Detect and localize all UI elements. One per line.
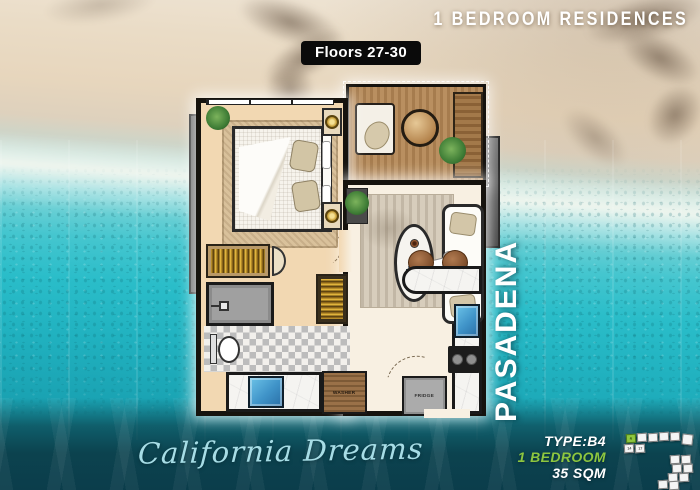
wardrobe <box>316 274 348 324</box>
balcony <box>346 84 486 184</box>
bedroom-window <box>206 99 334 105</box>
key-plan-unit: 14 <box>624 444 634 454</box>
kitchen-breakfast-bar <box>402 266 482 294</box>
floors-badge: Floors 27-30 <box>301 41 421 65</box>
balcony-round-table <box>401 109 439 147</box>
unit-type: TYPE:B4 <box>450 433 606 449</box>
wardrobe <box>206 244 270 278</box>
balcony-plant <box>439 137 466 164</box>
entry-doorway <box>424 409 470 418</box>
cooktop <box>448 346 480 373</box>
unit-info: TYPE:B4 1 BEDROOM 35 SQM <box>450 433 606 481</box>
balcony-bench <box>453 92 483 178</box>
key-plan-unit <box>637 433 647 443</box>
key-plan-unit <box>670 455 680 465</box>
key-plan-unit <box>679 473 689 483</box>
living-room-plant <box>346 188 368 224</box>
bed-pillow <box>322 141 331 169</box>
bedroom-plant <box>206 106 230 130</box>
key-plan-unit <box>681 455 691 465</box>
key-plan-unit-highlighted: 4 <box>626 434 636 444</box>
toilet <box>218 336 240 363</box>
balcony-lounge-chair <box>355 103 395 155</box>
floor-plan: WASHER FRIDGE <box>196 84 502 426</box>
floor-key-plan: 4 14 17 <box>624 431 700 489</box>
lamp-icon <box>325 209 339 223</box>
toilet <box>210 334 217 364</box>
bed-pillow <box>289 139 320 173</box>
burner-icon <box>452 354 463 365</box>
washer: WASHER <box>322 371 367 414</box>
key-plan-unit <box>681 433 693 445</box>
bedroom-doorway <box>339 230 352 272</box>
cup-icon <box>410 239 419 248</box>
shower <box>206 282 274 326</box>
burner-icon <box>466 354 477 365</box>
key-plan-unit <box>669 481 679 490</box>
building-name: PASADENA <box>486 242 528 420</box>
bed <box>232 126 332 232</box>
bathroom-sink <box>248 376 284 408</box>
unit-bedrooms: 1 BEDROOM <box>450 449 606 465</box>
shower-head-icon <box>219 301 229 311</box>
bed-pillow <box>291 179 321 213</box>
lamp-icon <box>325 115 339 129</box>
unit-area: 35 SQM <box>450 465 606 481</box>
key-plan-unit <box>659 432 669 442</box>
nightstand <box>322 108 342 136</box>
bed-duvet <box>239 137 295 221</box>
tagline: California Dreams <box>137 431 439 470</box>
residences-title: 1 BEDROOM RESIDENCES <box>433 8 688 30</box>
washer-label: WASHER <box>333 390 356 395</box>
palm-shadow <box>17 0 182 41</box>
key-plan-unit <box>670 432 680 442</box>
sofa-cushion <box>449 211 478 236</box>
key-plan-unit: 17 <box>635 444 645 454</box>
nightstand <box>322 202 342 230</box>
brochure-page: 1 BEDROOM RESIDENCES Floors 27-30 <box>0 0 700 490</box>
key-plan-unit <box>648 433 658 443</box>
key-plan-unit <box>658 480 668 490</box>
kitchen-sink <box>454 304 480 338</box>
